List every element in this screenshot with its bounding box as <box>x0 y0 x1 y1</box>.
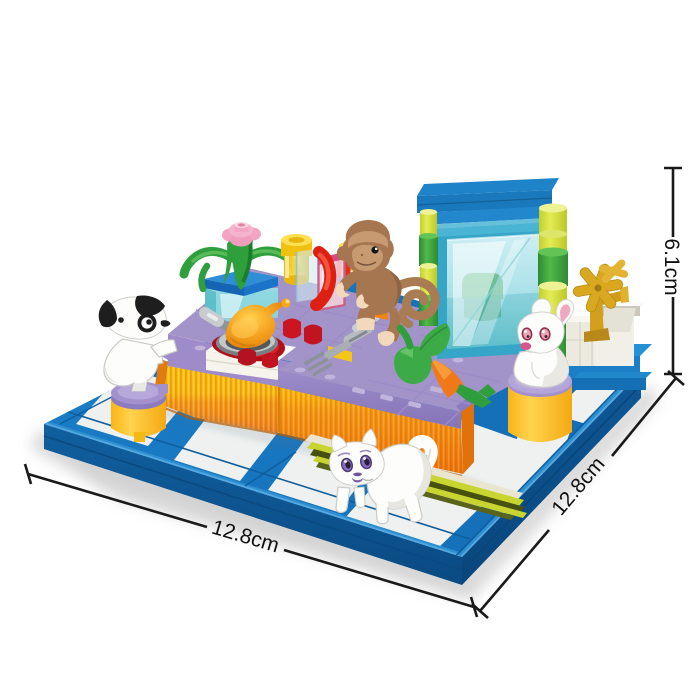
svg-text:6.1cm: 6.1cm <box>660 238 683 295</box>
